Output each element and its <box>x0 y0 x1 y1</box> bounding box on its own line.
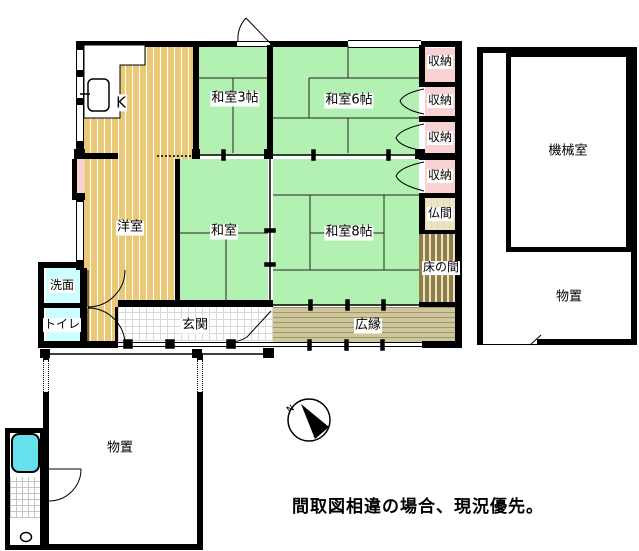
room-label-senmen: 洗面 <box>49 279 75 293</box>
kitchen-counter <box>80 45 145 118</box>
room-label-tokonoma: 床の間 <box>422 261 460 275</box>
closet-label-2: 収納 <box>427 94 453 108</box>
closet-label-1: 収納 <box>427 55 453 69</box>
room-label-kitchen: K <box>115 94 127 111</box>
plan-linework: N <box>0 0 639 551</box>
closet-door-arc <box>396 162 424 191</box>
room-label-washitsu8: 和室8帖 <box>324 226 373 241</box>
genkan-door-arc <box>231 311 271 342</box>
shed-door-arc <box>49 469 81 501</box>
room-label-machine-room: 機械室 <box>547 145 588 160</box>
kitchen-sink <box>88 79 109 111</box>
disclaimer-text: 間取図相違の場合、現況優先。 <box>292 492 544 517</box>
room-label-toilet: トイレ <box>43 318 81 332</box>
room-label-washitsu: 和室 <box>210 225 238 240</box>
floor-plan: N K 和室3帖 和室6帖 収納 収納 収納 収納 仏間 床の間 洋室 和室 和… <box>0 0 639 551</box>
room-label-hiroen: 広縁 <box>354 319 382 334</box>
toilet-door-arc <box>88 308 125 345</box>
closet-label-3: 収納 <box>427 131 453 145</box>
entry-door-arc <box>238 18 270 43</box>
room-label-washitsu6: 和室6帖 <box>324 94 373 109</box>
opening-tick <box>530 335 541 345</box>
tatami-lines <box>180 45 419 300</box>
room-label-washitsu3: 和室3帖 <box>210 92 259 107</box>
room-label-genkan: 玄関 <box>181 319 209 334</box>
room-label-youshitsu: 洋室 <box>116 221 144 236</box>
room-label-storage-right: 物置 <box>555 291 583 306</box>
closet-label-4: 収納 <box>427 169 453 183</box>
senmen-door-arc <box>88 270 125 307</box>
drain-icon <box>21 533 32 542</box>
compass-north-icon: N <box>285 399 330 441</box>
closet-door-arc <box>396 124 424 151</box>
closet-door-arc <box>400 89 424 114</box>
room-label-storage-lower: 物置 <box>106 442 134 457</box>
room-label-butsuma: 仏間 <box>427 207 453 221</box>
